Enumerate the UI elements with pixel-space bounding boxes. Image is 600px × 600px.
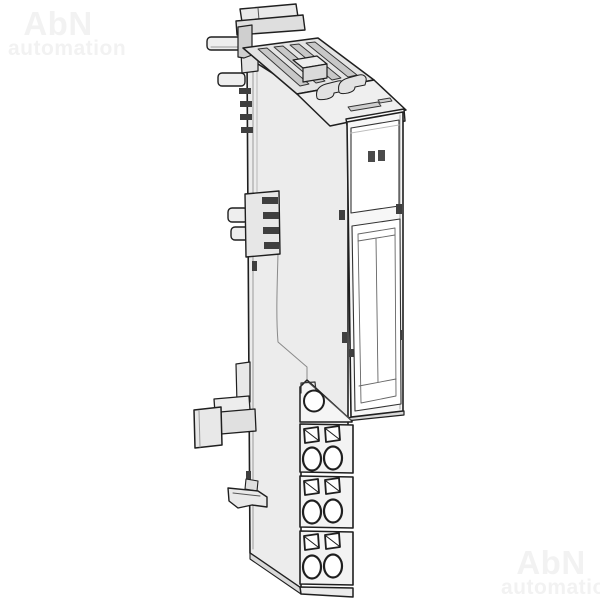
status-led: [378, 150, 385, 161]
label-panel: [352, 219, 401, 411]
status-led: [368, 151, 375, 162]
terminal-base-strip: [300, 587, 353, 597]
led-panel: [351, 120, 399, 213]
terminal-section-3: [300, 531, 353, 585]
mounting-foot: [194, 261, 257, 448]
terminal-section-1: [300, 424, 353, 473]
wire-hole: [324, 500, 342, 523]
wire-hole: [303, 448, 321, 471]
product-illustration-page: { "watermarks": { "top_left": { "line1":…: [0, 0, 600, 600]
wire-hole: [303, 501, 321, 524]
wire-hole: [324, 555, 342, 578]
terminal-section-2: [300, 476, 353, 528]
side-connector-block: [245, 191, 280, 257]
wire-hole: [303, 556, 321, 579]
module-illustration: [0, 0, 600, 600]
wire-hole: [304, 391, 324, 412]
wire-hole: [324, 447, 342, 470]
